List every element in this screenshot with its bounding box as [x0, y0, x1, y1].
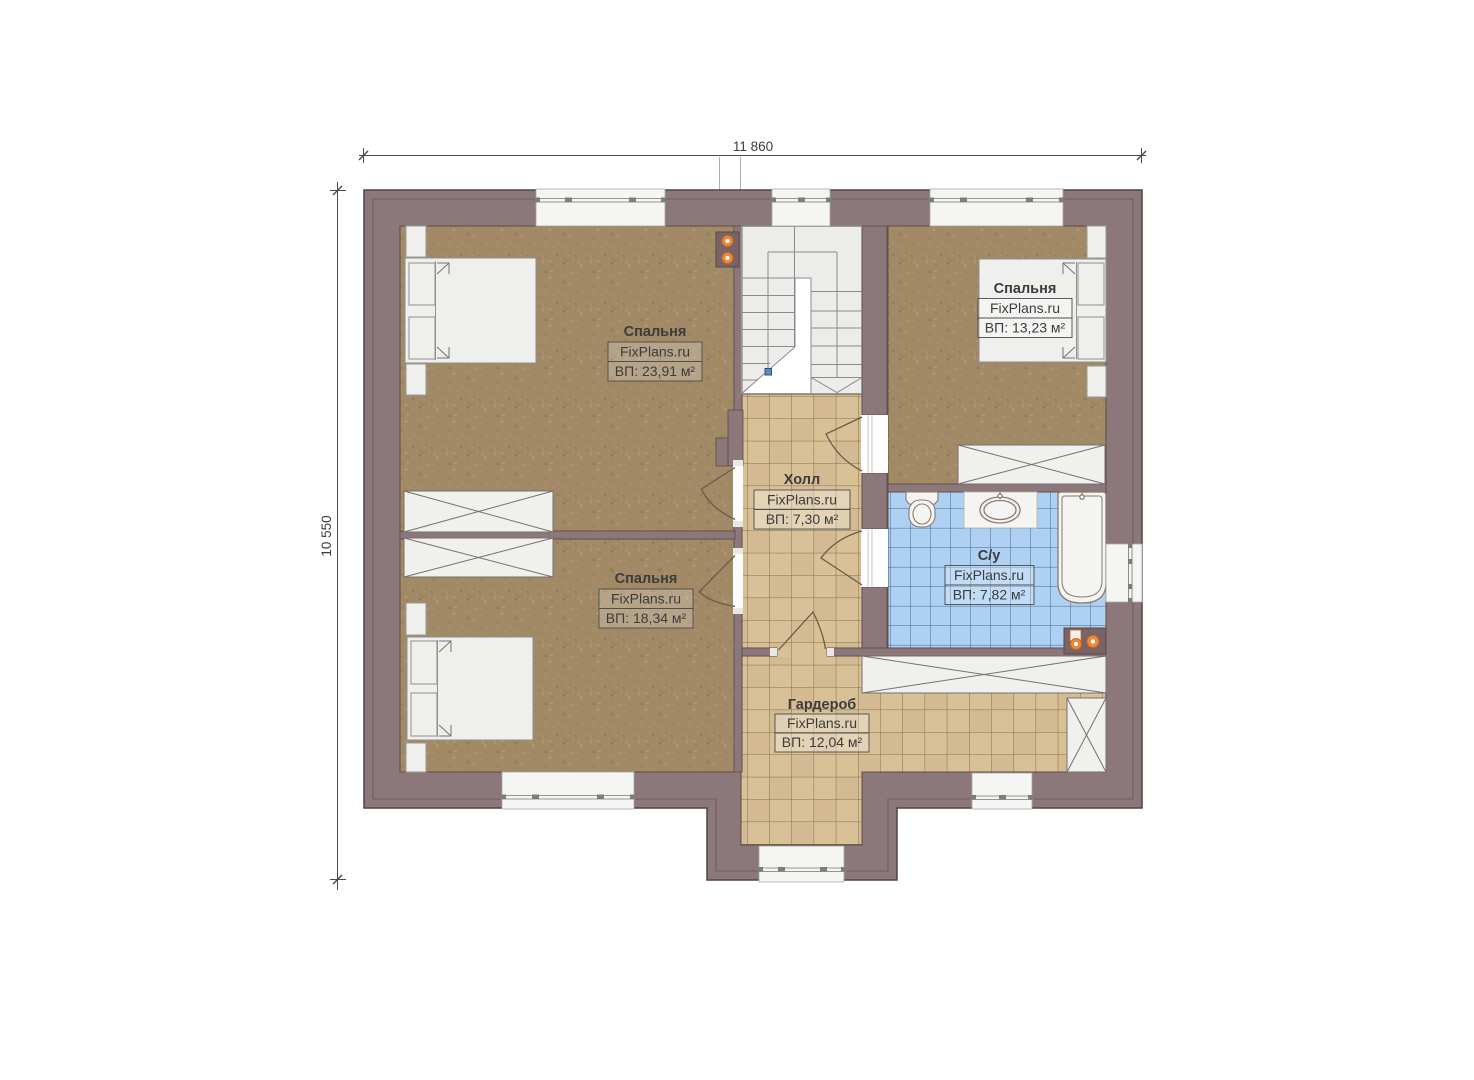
svg-text:Спальня: Спальня	[994, 281, 1057, 297]
svg-text:ВП: 23,91 м²: ВП: 23,91 м²	[615, 363, 696, 379]
svg-text:Спальня: Спальня	[615, 571, 678, 587]
svg-text:ВП: 7,82 м²: ВП: 7,82 м²	[953, 587, 1026, 603]
svg-text:FixPlans.ru: FixPlans.ru	[787, 715, 857, 731]
svg-text:Гардероб: Гардероб	[788, 697, 857, 713]
svg-text:Холл: Холл	[784, 472, 820, 488]
svg-text:FixPlans.ru: FixPlans.ru	[767, 492, 837, 508]
svg-text:ВП: 12,04 м²: ВП: 12,04 м²	[782, 734, 863, 750]
svg-text:FixPlans.ru: FixPlans.ru	[990, 300, 1060, 316]
svg-text:10 550: 10 550	[319, 515, 334, 556]
svg-text:Спальня: Спальня	[624, 324, 687, 340]
svg-text:11 860: 11 860	[733, 139, 773, 154]
svg-text:ВП: 13,23 м²: ВП: 13,23 м²	[985, 320, 1066, 336]
svg-text:FixPlans.ru: FixPlans.ru	[954, 567, 1024, 583]
svg-text:ВП: 18,34 м²: ВП: 18,34 м²	[606, 610, 687, 626]
svg-text:FixPlans.ru: FixPlans.ru	[611, 591, 681, 607]
svg-text:С/у: С/у	[978, 548, 1001, 564]
svg-text:FixPlans.ru: FixPlans.ru	[620, 344, 690, 360]
svg-text:ВП: 7,30 м²: ВП: 7,30 м²	[766, 511, 839, 527]
